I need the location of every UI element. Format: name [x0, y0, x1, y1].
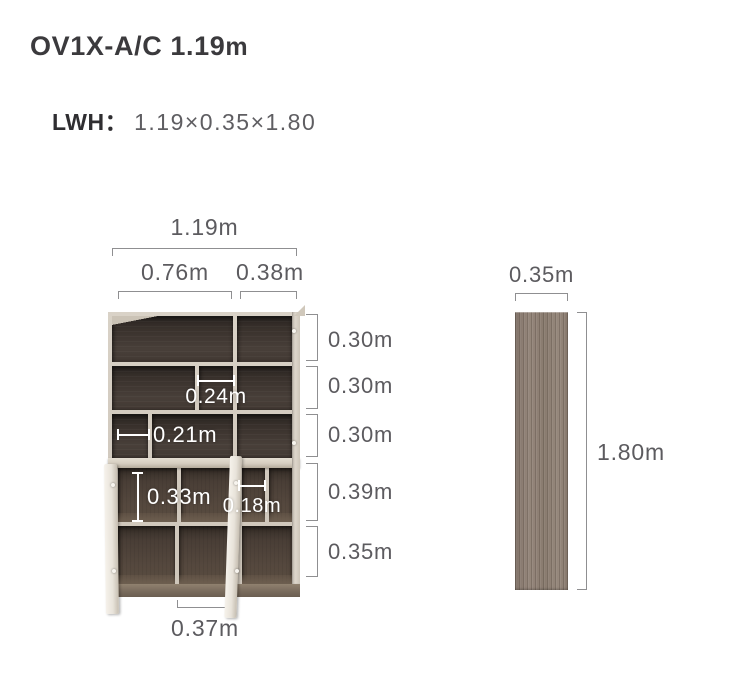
door-knob-dot	[112, 569, 116, 573]
front-cabinet-illustration	[108, 312, 300, 597]
front-left-width-label: 0.76m	[118, 259, 232, 285]
lwh-value: 1.19×0.35×1.80	[134, 109, 316, 135]
section-height-bracket-2	[306, 366, 318, 409]
inner-cabinet-height-line	[132, 472, 143, 522]
section-height-label-5: 0.35m	[328, 539, 393, 564]
door-width-label: 0.37m	[160, 615, 250, 641]
product-model-unit: m	[225, 33, 248, 61]
front-total-width-label: 1.19m	[112, 214, 297, 240]
inner-cabinet-width-line	[238, 480, 266, 491]
shelf-cell	[237, 316, 292, 362]
cabinet-plinth	[108, 584, 300, 597]
section-height-label-1: 0.30m	[328, 327, 393, 352]
countertop	[108, 458, 300, 468]
front-right-width-bracket	[240, 291, 297, 299]
front-left-width-bracket	[118, 291, 232, 299]
inner-shelf-small-width-label: 0.21m	[153, 422, 217, 448]
front-total-width-bracket	[112, 248, 297, 256]
side-depth-label: 0.35m	[509, 262, 574, 287]
section-height-label-2: 0.30m	[328, 373, 393, 398]
side-height-label: 1.80m	[597, 439, 665, 465]
lwh-spec-line: LWH：1.19×0.35×1.80	[52, 103, 316, 137]
cabinet-right-wall	[292, 312, 300, 584]
top-edge-highlight	[112, 316, 158, 325]
side-panel-illustration	[515, 312, 568, 590]
product-dimension-diagram: OV1X-A/C 1.19m LWH：1.19×0.35×1.80 1.19m …	[0, 0, 750, 697]
inner-cabinet-height-label: 0.33m	[147, 484, 211, 510]
side-depth-bracket	[515, 293, 568, 301]
side-height-bracket	[577, 312, 587, 590]
section-height-bracket-5	[306, 526, 318, 577]
shelf-cell	[237, 414, 292, 458]
hinge-dot	[292, 329, 296, 333]
door-knob-dot	[235, 569, 239, 573]
section-height-bracket-1	[306, 314, 318, 361]
shelf-cell	[112, 366, 195, 410]
section-height-bracket-3	[306, 414, 318, 457]
hinge-dot	[292, 441, 296, 445]
inner-cabinet-width-label: 0.18m	[221, 495, 283, 518]
cabinet-top-right-edge	[294, 305, 305, 316]
cabinet-cell	[242, 526, 292, 584]
front-right-width-label: 0.38m	[236, 259, 297, 285]
section-height-bracket-4	[306, 463, 318, 521]
page-title: OV1X-A/C 1.19m	[30, 31, 248, 62]
section-height-label-3: 0.30m	[328, 422, 393, 447]
product-model-text: OV1X-A/C 1.19	[30, 31, 225, 61]
section-height-label-4: 0.39m	[328, 479, 393, 504]
cabinet-cell	[118, 526, 175, 584]
inner-shelf-small-width-line	[117, 429, 150, 440]
lwh-label: LWH：	[52, 109, 128, 135]
inner-shelf-width-label: 0.24m	[185, 385, 247, 409]
door-knob-dot	[111, 483, 115, 487]
